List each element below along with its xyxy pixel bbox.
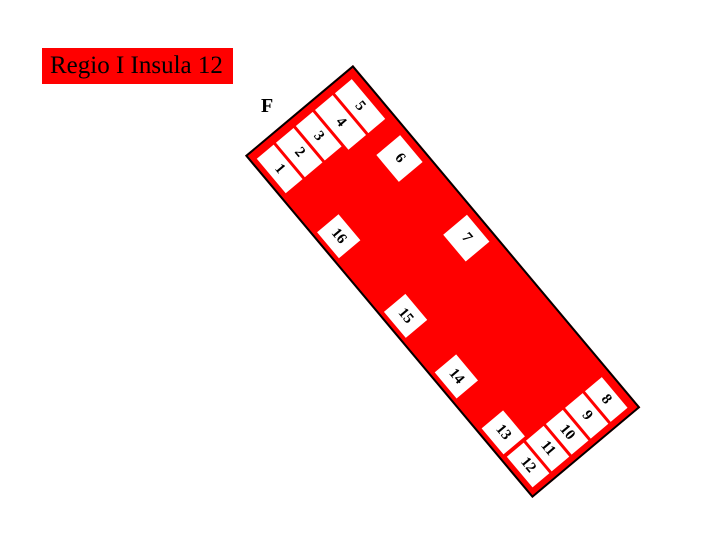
street-label-f: F: [261, 96, 273, 116]
entrance-14[interactable]: 14: [435, 354, 478, 398]
map-title: Regio I Insula 12: [42, 48, 233, 84]
entrance-7[interactable]: 7: [443, 215, 489, 262]
insula-block: 1 2 3 4 5 6 7 8 9 10 11 12 13 14 15 16: [245, 65, 640, 498]
entrance-16[interactable]: 16: [317, 214, 360, 258]
entrance-15[interactable]: 15: [384, 294, 427, 338]
entrance-6[interactable]: 6: [376, 135, 422, 182]
insula-map-canvas: Regio I Insula 12 F 1 2 3 4 5 6 7 8 9 10…: [0, 0, 720, 540]
